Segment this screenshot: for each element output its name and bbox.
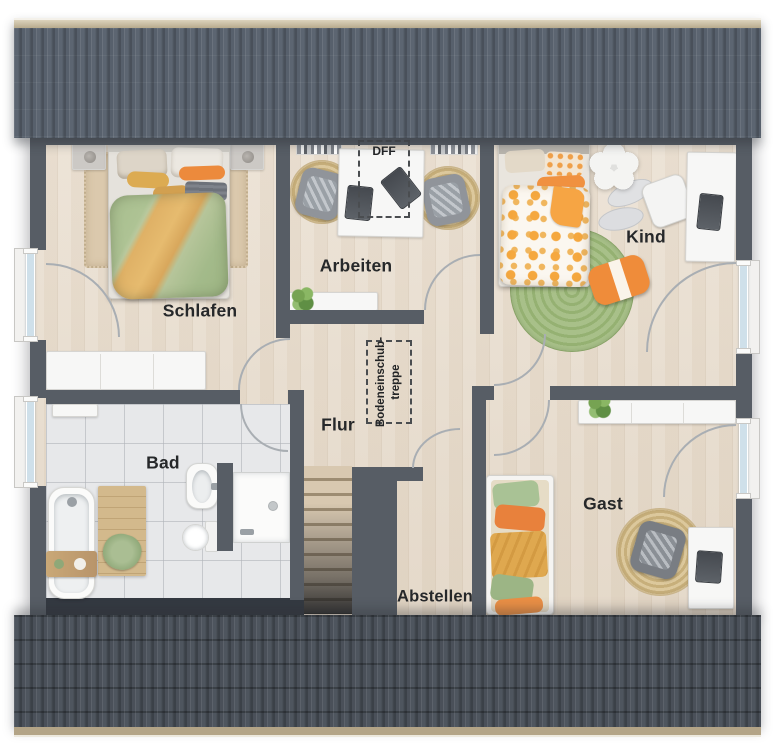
- pillow-orange: [494, 596, 543, 616]
- shower: [233, 472, 290, 543]
- wall-dusche: [217, 463, 233, 551]
- pillow-orange: [494, 504, 546, 532]
- wardrobe-divider: [100, 354, 101, 389]
- window-cap: [23, 248, 38, 254]
- cushion-stripe: [608, 259, 632, 301]
- wall-arbeiten-sued: [276, 310, 424, 324]
- window-gast: [736, 418, 760, 499]
- attic-hatch-label-line1: Bodeneinschub-: [374, 337, 389, 427]
- window-glass: [739, 422, 748, 495]
- caddy-item: [54, 559, 64, 569]
- window-kind: [736, 260, 760, 354]
- wall-abstellen-nord: [397, 467, 423, 481]
- wardrobe: [46, 351, 206, 390]
- wall: [736, 497, 752, 615]
- window-cap: [23, 482, 38, 488]
- floor-plan: DFF Bodeneinschub- treppe Schlafen Arbei…: [0, 0, 775, 756]
- wall-schlafen-bad: [46, 390, 240, 404]
- single-bed: [498, 141, 590, 287]
- wall-schlafen-arbeiten: [276, 140, 290, 338]
- bottom-wall-strip: [30, 598, 304, 615]
- pillow: [504, 149, 545, 174]
- caddy-item: [74, 558, 86, 570]
- staircase: [304, 466, 352, 614]
- wall: [30, 486, 46, 615]
- shower-faucet: [240, 529, 254, 535]
- tub-basin: [54, 494, 89, 593]
- sideboard-divider: [631, 403, 632, 423]
- plant: [290, 286, 316, 312]
- toilet-bowl: [182, 524, 209, 551]
- room-label-bad: Bad: [146, 453, 180, 474]
- room-label-gast: Gast: [583, 494, 623, 515]
- room-label-kind: Kind: [626, 227, 666, 248]
- roof-ridge: [14, 727, 761, 737]
- wall-corner: [288, 390, 304, 404]
- window-bad: [14, 396, 38, 488]
- room-label-abstellen: Abstellen: [397, 588, 473, 607]
- double-bed: [108, 141, 230, 299]
- wall: [30, 133, 46, 250]
- roof-top: [14, 18, 761, 138]
- roof-ridge: [14, 18, 761, 28]
- wall-bad-ost: [290, 404, 304, 600]
- window-schlafen: [14, 248, 38, 342]
- bath-caddy: [46, 551, 97, 577]
- window-cap: [23, 336, 38, 342]
- lamp: [84, 151, 96, 163]
- wall: [30, 340, 46, 398]
- bathtub: [48, 487, 95, 599]
- room-label-flur: Flur: [321, 415, 355, 436]
- wall-flur-gast-corner: [472, 386, 494, 400]
- window-cap: [736, 493, 751, 499]
- window-glass: [26, 252, 35, 338]
- roof-surface: [14, 28, 761, 138]
- orange-fold: [549, 186, 586, 228]
- radiator-shelf: [52, 404, 98, 417]
- duvet: [109, 192, 229, 300]
- room-label-arbeiten: Arbeiten: [320, 256, 393, 277]
- orange-pillow: [179, 165, 225, 181]
- monitor: [696, 193, 724, 231]
- wall-abstellen-ost: [472, 400, 486, 615]
- roof-window-dff-label: DFF: [372, 144, 395, 158]
- tub-faucet: [67, 497, 77, 507]
- laptop: [695, 550, 723, 584]
- window-frame: [747, 418, 760, 499]
- roof-bottom: [14, 615, 761, 737]
- flower-mirror: [588, 143, 640, 191]
- window-cap: [23, 396, 38, 402]
- attic-hatch-label-line2: treppe: [389, 337, 404, 427]
- window-cap: [736, 260, 751, 266]
- room-label-schlafen: Schlafen: [163, 301, 238, 322]
- window-glass: [26, 400, 35, 484]
- wardrobe-divider: [153, 354, 154, 389]
- nightstand-left: [72, 143, 106, 170]
- pillow: [544, 151, 583, 177]
- roof-surface: [14, 615, 761, 727]
- sideboard-divider: [683, 403, 684, 423]
- window-glass: [739, 264, 748, 350]
- basin: [192, 470, 212, 503]
- shower-drain: [268, 501, 278, 511]
- wall-kind-gast: [550, 386, 752, 400]
- window-frame: [747, 260, 760, 354]
- nightstand-right: [230, 143, 264, 170]
- lamp: [242, 151, 254, 163]
- attic-hatch-label: Bodeneinschub- treppe: [374, 337, 404, 427]
- washbasin: [186, 463, 218, 509]
- window-cap: [736, 348, 751, 354]
- window-cap: [736, 418, 751, 424]
- wall-arbeiten-kind: [480, 140, 494, 334]
- wall-treppe: [352, 467, 397, 615]
- wall: [736, 133, 752, 262]
- daybed: [486, 475, 554, 615]
- blanket-mustard: [490, 531, 548, 580]
